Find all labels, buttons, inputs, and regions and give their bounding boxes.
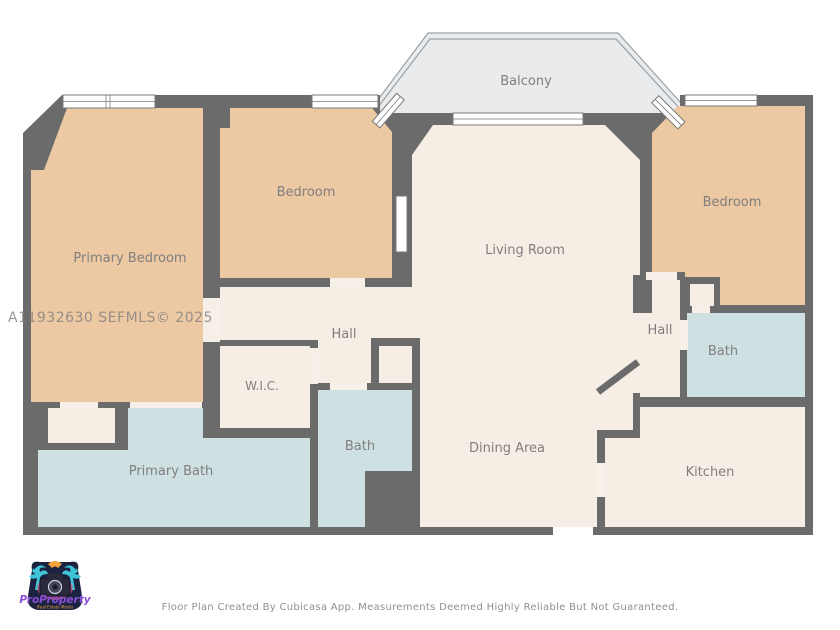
room-label-dining-area: Dining Area <box>469 441 545 456</box>
balcony-floor <box>368 33 690 113</box>
window-icon <box>63 95 155 108</box>
room-bath-right <box>687 313 805 397</box>
footer-disclaimer: Floor Plan Created By Cubicasa App. Meas… <box>162 602 679 613</box>
door-opening <box>330 278 365 287</box>
floor-plan-image: Balcony Primary Bedroom Bedroom Living R… <box>0 0 840 630</box>
room-label-bedroom-top: Bedroom <box>277 185 336 200</box>
balcony-door-icon <box>453 113 583 125</box>
window-icon <box>685 95 757 106</box>
window-icon <box>312 95 378 108</box>
floor-plan-canvas: Balcony Primary Bedroom Bedroom Living R… <box>0 0 840 630</box>
logo-tagline-text: Real Estate Media <box>37 605 74 610</box>
room-label-primary-bedroom: Primary Bedroom <box>73 251 186 266</box>
door-opening <box>310 348 318 384</box>
closet-right <box>690 284 714 306</box>
balcony-area <box>368 33 690 113</box>
door-opening <box>60 402 98 408</box>
room-label-hall-left: Hall <box>332 327 357 342</box>
door-opening <box>330 383 367 390</box>
room-label-balcony: Balcony <box>500 74 552 89</box>
room-label-bath-right: Bath <box>708 344 738 359</box>
door-opening <box>130 402 202 408</box>
pocket-door <box>396 196 407 252</box>
proproperty-logo: ProProperty Real Estate Media <box>19 561 91 610</box>
room-label-hall-right: Hall <box>648 323 673 338</box>
door-opening <box>646 272 677 280</box>
room-label-bath-middle: Bath <box>345 439 375 454</box>
door-opening <box>692 306 710 313</box>
entry-door-opening <box>553 527 593 536</box>
room-label-bedroom-right: Bedroom <box>703 195 762 210</box>
room-label-wic: W.I.C. <box>245 379 279 393</box>
closet-left <box>48 408 115 443</box>
room-label-living-room: Living Room <box>485 243 565 258</box>
room-label-kitchen: Kitchen <box>686 465 735 480</box>
room-label-primary-bath: Primary Bath <box>129 464 214 479</box>
alcove <box>378 346 410 383</box>
door-opening <box>680 320 688 350</box>
door-opening <box>597 463 605 497</box>
mls-watermark: A11932630 SEFMLS© 2025 <box>8 310 213 326</box>
